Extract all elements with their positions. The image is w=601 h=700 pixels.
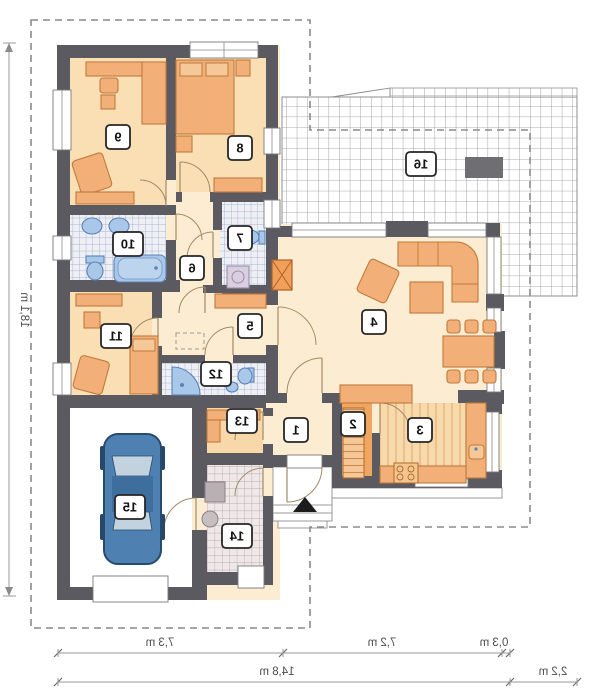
svg-text:5: 5: [246, 319, 253, 334]
dining-chair: [465, 370, 478, 383]
terrace-ramp: [332, 88, 390, 97]
garage-door: [93, 576, 168, 602]
dining-chair: [447, 370, 460, 383]
closet: [207, 420, 220, 442]
svg-text:14: 14: [229, 529, 244, 544]
room-label-3: 3: [408, 418, 432, 442]
wardrobe: [142, 62, 166, 124]
room-label-8: 8: [228, 136, 252, 160]
window: [53, 363, 71, 395]
windshield: [112, 456, 153, 476]
dim-label-18-1: 18,1 m: [18, 292, 30, 327]
dim-label-2-2: 2,2 m: [539, 666, 568, 678]
dresser: [76, 192, 134, 204]
nightstand: [236, 60, 250, 76]
room-label-10: 10: [113, 232, 143, 256]
svg-text:16: 16: [414, 157, 428, 172]
dim-label-7-3: 7,3 m: [146, 637, 175, 649]
room-label-12: 12: [201, 362, 231, 386]
dining-table: [443, 336, 494, 367]
room-label-4: 4: [362, 310, 386, 334]
svg-text:8: 8: [236, 141, 243, 156]
room-label-2: 2: [341, 412, 365, 436]
room-label-7: 7: [228, 226, 252, 250]
pillow: [180, 63, 202, 76]
room-label-14: 14: [222, 524, 252, 548]
svg-text:4: 4: [370, 315, 378, 330]
svg-text:1: 1: [292, 423, 299, 438]
south-path: [332, 488, 502, 498]
pillow: [133, 339, 155, 351]
window: [264, 200, 280, 228]
window: [428, 223, 486, 237]
room-label-5: 5: [238, 314, 262, 338]
room-label-6: 6: [180, 256, 204, 280]
dim-label-7-2: 7,2 m: [368, 637, 397, 649]
dim-label-0-3: 0,3 m: [480, 637, 509, 649]
kitchen-sink: [469, 445, 484, 459]
toilet: [87, 262, 103, 280]
dim-label-14-8: 14,8 m: [259, 666, 294, 678]
sink: [82, 218, 102, 234]
window: [292, 223, 386, 237]
room-label-15: 15: [115, 495, 145, 519]
room-label-11: 11: [101, 324, 131, 348]
floor-plan: 1 2 3 4 5 6 7 8 9 10 11 12 13 14 15 16 7…: [0, 0, 601, 700]
window: [486, 412, 499, 472]
window: [487, 237, 501, 294]
toilet: [238, 368, 252, 384]
water-heater: [202, 511, 218, 527]
room-label-1: 1: [284, 418, 308, 442]
front-door-opening: [287, 455, 322, 468]
window: [190, 42, 258, 58]
washing-machine-icon: [227, 266, 249, 288]
sideboard: [340, 385, 412, 403]
svg-text:0,3 m: 0,3 m: [480, 637, 509, 649]
svg-text:7,3 m: 7,3 m: [146, 637, 175, 649]
chair: [100, 78, 118, 93]
side-table: [84, 312, 100, 328]
svg-text:14,8 m: 14,8 m: [259, 666, 294, 678]
room-label-9: 9: [106, 125, 130, 149]
hall-wardrobe: [215, 294, 266, 308]
window: [264, 128, 280, 154]
window: [53, 236, 71, 260]
boiler: [205, 482, 225, 502]
svg-text:3: 3: [416, 423, 423, 438]
svg-text:7,2 m: 7,2 m: [368, 637, 397, 649]
svg-text:13: 13: [235, 414, 249, 429]
dining-chair: [483, 320, 496, 333]
svg-text:12: 12: [209, 367, 223, 382]
svg-text:15: 15: [123, 500, 137, 515]
desk: [76, 294, 122, 306]
terrace-chimney: [465, 157, 503, 178]
dining-chair: [447, 320, 460, 333]
wardrobe: [214, 178, 262, 192]
svg-text:2: 2: [349, 417, 356, 432]
svg-text:2,2 m: 2,2 m: [539, 666, 568, 678]
toilet-tank: [259, 231, 265, 244]
coffee-table: [410, 282, 443, 313]
desk: [86, 62, 144, 76]
svg-text:7: 7: [236, 231, 243, 246]
room-label-16: 16: [406, 152, 436, 176]
kitchen-counter: [466, 403, 486, 478]
window: [53, 90, 71, 150]
fireplace-icon: [272, 260, 292, 290]
floor-plan-page: 1 2 3 4 5 6 7 8 9 10 11 12 13 14 15 16 7…: [0, 0, 601, 700]
kitchen-counter: [380, 466, 466, 483]
side-table: [101, 95, 115, 109]
dining-chair: [465, 320, 478, 333]
dining-chair: [483, 370, 496, 383]
svg-text:11: 11: [109, 329, 123, 344]
stove-icon: [394, 463, 418, 483]
room-label-13: 13: [227, 409, 257, 433]
svg-text:18,1 m: 18,1 m: [18, 292, 30, 327]
pillow: [206, 63, 228, 76]
nightstand: [176, 136, 192, 152]
svg-text:6: 6: [188, 261, 195, 276]
back-door: [238, 566, 264, 588]
svg-text:10: 10: [121, 237, 135, 252]
svg-text:9: 9: [114, 130, 121, 145]
